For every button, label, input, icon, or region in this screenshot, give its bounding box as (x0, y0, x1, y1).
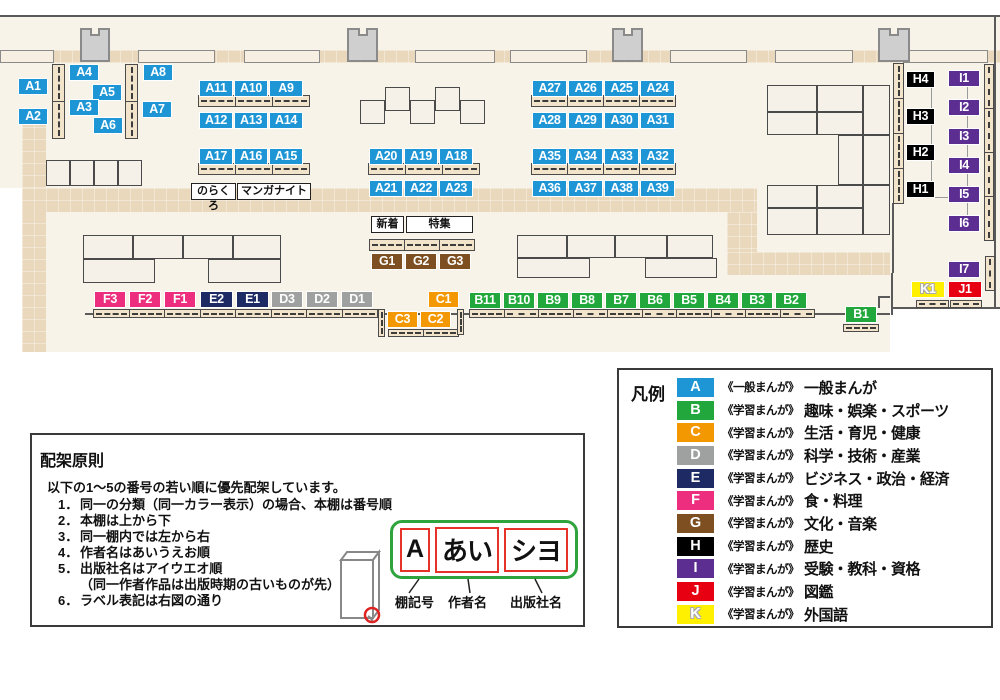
table (667, 235, 713, 258)
shelving-principles-box: 配架原則 以下の1～5の番号の若い順に優先配架しています。 1．同一の分類（同一… (30, 433, 585, 627)
bookshelf (469, 309, 505, 318)
shelf-label-a33: A33 (604, 148, 639, 165)
bookshelf (423, 329, 459, 337)
shelf-label-g1: G1 (371, 253, 403, 270)
bookshelf (984, 196, 994, 241)
shelf-label-i7: I7 (948, 261, 980, 278)
shelf-dash (988, 155, 990, 194)
shelf-label-a31: A31 (640, 112, 675, 129)
table (615, 235, 667, 258)
shelf-label-a8: A8 (143, 64, 173, 81)
shelf-label-a13: A13 (234, 112, 268, 129)
walkway-carpet (22, 115, 46, 352)
bookshelf (893, 63, 904, 99)
bookshelf (985, 256, 995, 291)
table (817, 85, 863, 112)
shelf-label-a34: A34 (568, 148, 603, 165)
shelf-label-a20: A20 (369, 148, 403, 165)
shelf-dash (275, 168, 307, 170)
plate-author: あい (435, 527, 499, 573)
shelf-label-a36: A36 (532, 180, 567, 197)
bookshelf (52, 64, 65, 102)
shelf-label-a6: A6 (93, 117, 123, 134)
bookshelf (388, 329, 424, 337)
shelf-label-a11: A11 (199, 80, 233, 97)
legend-series: 《学習まんが》 (722, 447, 799, 463)
shelf-dash (131, 67, 133, 99)
bookshelf (504, 309, 540, 318)
bookshelf (711, 309, 747, 318)
legend-category: 外国語 (804, 604, 848, 625)
legend-category: 図鑑 (804, 581, 833, 602)
bookshelf (950, 300, 982, 308)
shelf-label-b8: B8 (571, 292, 603, 309)
principles-item-text: 出版社名はアイウエオ順 (80, 561, 222, 577)
shelf-label-i6: I6 (948, 215, 980, 232)
shelf-dash (541, 313, 571, 315)
shelf-label-e1: E1 (236, 291, 269, 308)
table (460, 100, 485, 124)
shelf-dash (898, 66, 900, 96)
area-sign: のらくろ (191, 183, 236, 200)
legend-series: 《学習まんが》 (722, 561, 799, 577)
legend-color-chip: E (677, 469, 714, 488)
shelf-dash (391, 332, 421, 334)
table (410, 100, 435, 124)
table (385, 87, 410, 111)
legend-item-f: F《学習まんが》食・料理 (677, 489, 987, 512)
connector-line (931, 124, 932, 145)
table (435, 87, 460, 111)
shelf-label-a35: A35 (532, 148, 567, 165)
shelf-label-a39: A39 (640, 180, 675, 197)
table (767, 208, 817, 235)
legend-rows: A《一般まんが》一般まんがB《学習まんが》趣味・娯楽・スポーツC《学習まんが》生… (677, 376, 987, 626)
shelf-label-g3: G3 (439, 253, 471, 270)
shelf-dash (372, 244, 402, 246)
shelf-label-k1: K1 (911, 281, 945, 298)
shelf-dash (408, 168, 440, 170)
legend-item-b: B《学習まんが》趣味・娯楽・スポーツ (677, 399, 987, 422)
legend-series: 《学習まんが》 (722, 425, 799, 441)
legend-category: 歴史 (804, 536, 833, 557)
shelf-label-a18: A18 (439, 148, 473, 165)
table (517, 235, 567, 258)
table (133, 235, 183, 259)
plate-shelf-code: A (400, 528, 430, 572)
legend-category: 趣味・娯楽・スポーツ (804, 400, 949, 421)
legend-color-chip: G (677, 514, 714, 533)
connector-line (967, 87, 968, 99)
bookshelf (235, 309, 272, 318)
shelf-dash (606, 168, 637, 170)
principles-item-number: 4． (58, 545, 80, 561)
shelf-dash (371, 168, 403, 170)
table (83, 259, 155, 283)
bookshelf (780, 309, 816, 318)
shelf-dash (988, 67, 990, 106)
legend-series: 《学習まんが》 (722, 493, 799, 509)
pillar-notch (90, 28, 100, 36)
table (817, 208, 863, 235)
table (94, 160, 118, 186)
bookshelf (893, 98, 904, 134)
bookshelf (573, 309, 609, 318)
table (863, 85, 890, 135)
shelf-dash (534, 168, 565, 170)
shelf-dash (201, 168, 233, 170)
caption-author: 作者名 (448, 592, 487, 611)
shelf-label-b2: B2 (775, 292, 807, 309)
table (360, 100, 385, 124)
table (767, 185, 817, 208)
shelf-dash (507, 313, 537, 315)
shelf-dash (714, 313, 744, 315)
legend-box: 凡例 A《一般まんが》一般まんがB《学習まんが》趣味・娯楽・スポーツC《学習まん… (617, 368, 993, 628)
shelf-dash (131, 104, 133, 136)
connector-line (967, 203, 968, 215)
principles-item-number: 6． (58, 593, 80, 609)
principles-item: 2．本棚は上から下 (58, 513, 392, 529)
shelf-dash (606, 100, 637, 102)
shelf-label-a16: A16 (234, 148, 268, 165)
shelf-dash (989, 259, 991, 288)
shelf-label-a23: A23 (439, 180, 473, 197)
shelf-dash (58, 104, 60, 136)
shelf-label-i1: I1 (948, 70, 980, 87)
table (767, 112, 817, 135)
table (645, 258, 717, 278)
legend-color-chip: A (677, 378, 714, 397)
shelf-label-a3: A3 (69, 99, 99, 116)
shelf-label-b11: B11 (469, 292, 501, 309)
shelf-label-c2: C2 (420, 311, 451, 328)
shelf-label-f2: F2 (129, 291, 161, 308)
shelf-label-d3: D3 (271, 291, 303, 308)
bookshelf (52, 101, 65, 139)
bookshelf (642, 309, 678, 318)
bookshelf (916, 300, 949, 308)
principles-item-number: 5． (58, 561, 80, 577)
shelf-dash (953, 303, 979, 305)
bookshelf (984, 152, 994, 197)
shelf-label-i4: I4 (948, 157, 980, 174)
bookshelf (93, 309, 130, 318)
bookshelf (439, 239, 475, 251)
connector-line (967, 116, 968, 128)
legend-category: 文化・音楽 (804, 513, 877, 534)
table (838, 135, 863, 185)
principles-item-text: 本棚は上から下 (80, 513, 171, 529)
shelf-dash (96, 313, 127, 315)
legend-series: 《学習まんが》 (722, 538, 799, 554)
table (183, 235, 233, 259)
table (863, 185, 890, 235)
shelf-label-a28: A28 (532, 112, 567, 129)
legend-category: 生活・育児・健康 (804, 422, 920, 443)
shelf-label-a32: A32 (640, 148, 675, 165)
wall-shelf (415, 50, 495, 63)
shelf-dash (445, 168, 477, 170)
area-sign: マンガナイト (237, 183, 311, 200)
wall-shelf (0, 50, 54, 63)
pillar (612, 28, 643, 62)
shelf-dash (381, 312, 383, 334)
bookshelf (457, 309, 464, 335)
pillar (878, 28, 910, 62)
caption-publisher: 出版社名 (510, 592, 562, 611)
bookshelf (984, 108, 994, 153)
principles-item-number: 2． (58, 513, 80, 529)
legend-title: 凡例 (631, 380, 665, 405)
pillar-notch (358, 28, 368, 36)
shelf-dash (238, 313, 269, 315)
shelf-dash (345, 313, 376, 315)
shelf-label-a4: A4 (69, 64, 99, 81)
shelf-dash (576, 313, 606, 315)
principles-item-number: 1． (58, 497, 80, 513)
shelf-dash (846, 327, 876, 329)
shelf-dash (167, 313, 198, 315)
wall-shelf (775, 50, 853, 63)
floor-map: A1A2A4A5A3A6A8A7A11A10A9A12A13A14A17A16A… (0, 0, 1000, 360)
bookshelf (125, 101, 138, 139)
shelf-dash (898, 101, 900, 131)
legend-color-chip: C (677, 423, 714, 442)
shelf-label-a9: A9 (269, 80, 303, 97)
shelf-label-i2: I2 (948, 99, 980, 116)
principles-item-text: 同一棚内では左から右 (80, 529, 210, 545)
legend-item-i: I《学習まんが》受験・教科・資格 (677, 558, 987, 581)
shelf-label-a10: A10 (234, 80, 268, 97)
shelf-label-b1: B1 (845, 306, 877, 323)
shelf-dash (610, 313, 640, 315)
bookshelf (843, 324, 879, 332)
shelf-label-c3: C3 (387, 311, 418, 328)
shelf-label-b7: B7 (605, 292, 637, 309)
table (83, 235, 133, 259)
shelf-label-a30: A30 (604, 112, 639, 129)
legend-category: 科学・技術・産業 (804, 445, 920, 466)
shelf-label-f1: F1 (164, 291, 196, 308)
shelf-dash (132, 313, 163, 315)
shelf-label-b4: B4 (707, 292, 739, 309)
shelf-dash (58, 67, 60, 99)
shelf-dash (309, 313, 340, 315)
shelf-label-a2: A2 (18, 108, 48, 125)
shelf-label-a29: A29 (568, 112, 603, 129)
pillar (347, 28, 378, 62)
bookshelf (676, 309, 712, 318)
shelf-label-a7: A7 (142, 101, 172, 118)
legend-item-k: K《学習まんが》外国語 (677, 603, 987, 626)
legend-color-chip: D (677, 446, 714, 465)
shelf-dash (407, 244, 437, 246)
bookshelf (378, 309, 385, 337)
bookshelf (129, 309, 166, 318)
table (567, 235, 615, 258)
shelf-dash (748, 313, 778, 315)
principles-item-text: 作者名はあいうえお順 (80, 545, 210, 561)
bookshelf (538, 309, 574, 318)
shelf-dash (274, 313, 305, 315)
shelf-label-b5: B5 (673, 292, 705, 309)
shelf-dash (442, 244, 472, 246)
shelf-dash (238, 168, 270, 170)
shelf-label-a14: A14 (269, 112, 303, 129)
shelf-dash (203, 313, 234, 315)
principles-item-text: （同一作者作品は出版時期の古いものが先） (80, 577, 340, 593)
library-floor-map-page: A1A2A4A5A3A6A8A7A11A10A9A12A13A14A17A16A… (0, 0, 1000, 700)
shelf-label-f3: F3 (94, 291, 126, 308)
pillar-notch (889, 28, 899, 36)
book-icon (335, 548, 385, 624)
shelf-label-a27: A27 (532, 80, 567, 97)
legend-item-c: C《学習まんが》生活・育児・健康 (677, 421, 987, 444)
bookshelf (369, 239, 405, 251)
shelf-label-a12: A12 (199, 112, 233, 129)
shelf-label-g2: G2 (405, 253, 437, 270)
table (233, 235, 281, 259)
caption-shelf-code: 棚記号 (395, 592, 434, 611)
table (70, 160, 94, 186)
shelf-label-b6: B6 (639, 292, 671, 309)
shelf-label-a15: A15 (269, 148, 303, 165)
connector-line (967, 145, 968, 157)
table (817, 112, 863, 135)
principles-title: 配架原則 (40, 447, 104, 471)
wall-shelf (903, 50, 988, 63)
shelf-dash (570, 168, 601, 170)
principles-item-number (58, 577, 80, 593)
wall-line (0, 15, 1000, 17)
legend-color-chip: I (677, 559, 714, 578)
bookshelf (607, 309, 643, 318)
bookshelf (125, 64, 138, 102)
shelf-label-d1: D1 (341, 291, 373, 308)
table (863, 135, 890, 185)
principles-item-number: 3． (58, 529, 80, 545)
legend-category: 受験・教科・資格 (804, 558, 920, 579)
shelf-dash (460, 312, 462, 332)
table (817, 185, 863, 208)
legend-color-chip: B (677, 401, 714, 420)
pillar-notch (623, 28, 633, 36)
bookshelf (984, 64, 994, 109)
wall-shelf (670, 50, 747, 63)
legend-color-chip: F (677, 491, 714, 510)
wall-shelf (510, 50, 587, 63)
shelf-label-h3: H3 (906, 108, 935, 125)
connector-line (967, 174, 968, 186)
legend-category: ビジネス・政治・経済 (804, 468, 949, 489)
legend-category: 一般まんが (804, 377, 877, 398)
shelf-dash (201, 100, 233, 102)
shelf-dash (534, 100, 565, 102)
legend-item-h: H《学習まんが》歴史 (677, 535, 987, 558)
legend-series: 《学習まんが》 (722, 515, 799, 531)
area-sign: 新着 (371, 216, 404, 233)
shelf-dash (783, 313, 813, 315)
legend-series: 《学習まんが》 (722, 470, 799, 486)
legend-item-a: A《一般まんが》一般まんが (677, 376, 987, 399)
shelf-dash (645, 313, 675, 315)
table (46, 160, 70, 186)
bookshelf (342, 309, 379, 318)
shelf-label-i3: I3 (948, 128, 980, 145)
shelf-label-a37: A37 (568, 180, 603, 197)
legend-series: 《学習まんが》 (722, 606, 799, 622)
shelf-label-b3: B3 (741, 292, 773, 309)
principles-intro: 以下の1～5の番号の若い順に優先配架しています。 (47, 477, 346, 496)
shelf-label-d2: D2 (306, 291, 338, 308)
shelf-dash (679, 313, 709, 315)
shelf-dash (472, 313, 502, 315)
legend-color-chip: H (677, 537, 714, 556)
legend-item-j: J《学習まんが》図鑑 (677, 580, 987, 603)
shelf-label-e2: E2 (200, 291, 233, 308)
legend-series: 《学習まんが》 (722, 584, 799, 600)
shelf-dash (898, 136, 900, 166)
shelf-dash (275, 100, 307, 102)
shelf-dash (898, 171, 900, 201)
principles-item-text: 同一の分類（同一カラー表示）の場合、本棚は番号順 (80, 497, 392, 513)
bookshelf (893, 133, 904, 169)
shelf-label-a25: A25 (604, 80, 639, 97)
bookshelf (404, 239, 440, 251)
connector-line (931, 160, 932, 182)
shelf-dash (642, 168, 673, 170)
bookshelf (745, 309, 781, 318)
principles-item: 3．同一棚内では左から右 (58, 529, 392, 545)
shelf-label-a21: A21 (369, 180, 403, 197)
table (118, 160, 142, 186)
plate-publisher: シヨ (504, 528, 568, 572)
shelf-label-a19: A19 (404, 148, 438, 165)
shelf-dash (988, 199, 990, 238)
shelf-dash (988, 111, 990, 150)
shelf-label-b9: B9 (537, 292, 569, 309)
spine-label-plate: A あい シヨ (390, 520, 578, 579)
wall-line (892, 203, 894, 273)
shelf-label-a24: A24 (640, 80, 675, 97)
principles-item: 1．同一の分類（同一カラー表示）の場合、本棚は番号順 (58, 497, 392, 513)
pillar (80, 28, 110, 62)
legend-category: 食・料理 (804, 490, 862, 511)
table (767, 85, 817, 112)
legend-color-chip: J (677, 582, 714, 601)
bookshelf (164, 309, 201, 318)
connector-line (931, 88, 932, 110)
wall-shelf (138, 50, 215, 63)
shelf-dash (570, 100, 601, 102)
wall-line (878, 296, 880, 308)
legend-series: 《一般まんが》 (722, 379, 799, 395)
principles-item-text: ラベル表記は右図の通り (80, 593, 223, 609)
bookshelf (893, 168, 904, 204)
shelf-label-a1: A1 (18, 78, 48, 95)
shelf-label-a17: A17 (199, 148, 233, 165)
shelf-label-h2: H2 (906, 144, 935, 161)
bookshelf (271, 309, 308, 318)
bookshelf (306, 309, 343, 318)
shelf-dash (642, 100, 673, 102)
table (517, 258, 590, 278)
shelf-label-h4: H4 (906, 71, 935, 88)
shelf-label-a22: A22 (404, 180, 438, 197)
shelf-dash (919, 303, 946, 305)
shelf-label-i5: I5 (948, 186, 980, 203)
